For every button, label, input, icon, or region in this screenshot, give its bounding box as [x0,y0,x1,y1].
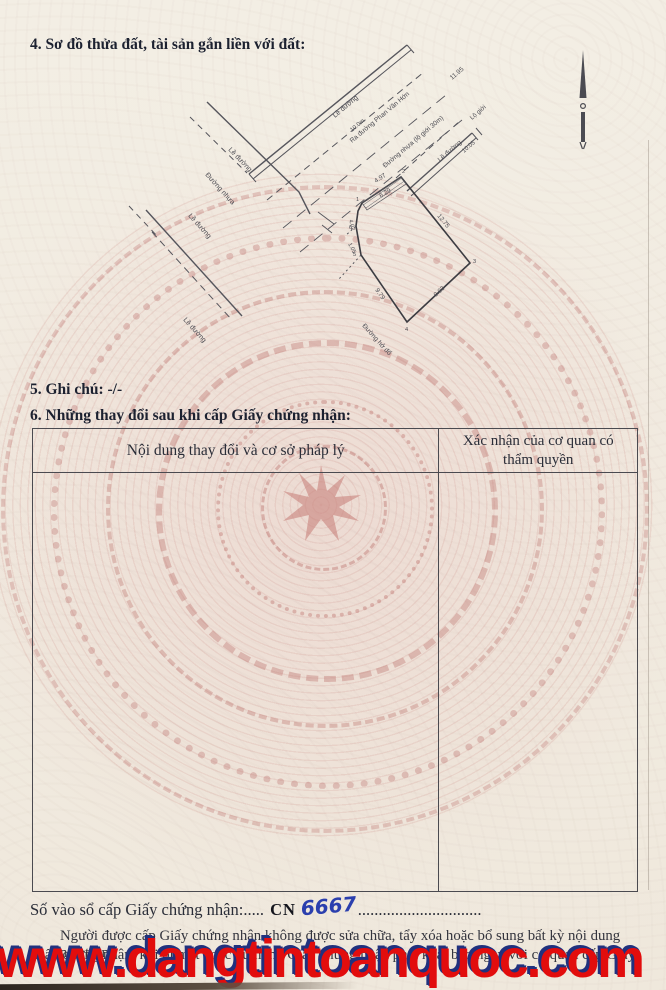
dim-right: 12.75 [435,213,451,230]
vertex-1: 1 [356,197,359,203]
road-dim-1195: 11.95 [449,66,466,82]
site-watermark: www.dangtintoanquoc.com [0,928,642,990]
registry-number-line: Số vào sổ cấp Giấy chứng nhận:..... CN 6… [30,896,481,920]
road-label-le-duong-1: Lề đường [331,93,360,120]
vertex-3: 3 [473,259,476,265]
certificate-page: 4. Sơ đồ thửa đất, tài sản gắn liền với … [0,0,666,990]
vertex-5: 5 [353,252,356,258]
vertex-4: 4 [405,327,408,333]
road-label-le-duong-2: Lề đường [435,138,463,164]
col-header-confirmation: Xác nhận của cơ quan có thẩm quyền [439,429,637,472]
road-label-le-duong-3: Lề đường [227,145,255,173]
page-edge-line [648,140,649,890]
cadastral-diagram: Lề đường 10.0m 11.95 Ra đường Phan Văn H… [0,0,666,380]
photo-edge-shadow [0,982,358,990]
dots-leader-1: ..... [243,900,264,919]
changes-table: Nội dung thay đổi và cơ sở pháp lý Xác n… [32,428,638,892]
section5-note: 5. Ghi chú: -/- [30,381,122,399]
road-dim-band: 10.05 [461,140,477,155]
content-cell-empty [33,473,439,891]
registry-number-prefix: CN [270,900,296,919]
road-label-bottom: Đường hở đổ [361,322,394,357]
road-label-duong-nhua: Đường nhựa [204,172,236,207]
road-label-le-duong-4: Lề đường [187,211,214,240]
confirmation-cell-empty [439,473,637,891]
road-label-le-duong-5: Lề đường [182,315,209,344]
street-name-nhua-lo-gioi: Đường nhựa (lộ giới 30m) [382,115,445,170]
section6-title: 6. Những thay đổi sau khi cấp Giấy chứng… [30,407,351,425]
col-header-content: Nội dung thay đổi và cơ sở pháp lý [33,429,439,472]
dots-leader-2: .............................. [358,900,482,919]
vertex-6: 6 [349,225,352,231]
table-header-row: Nội dung thay đổi và cơ sở pháp lý Xác n… [33,429,637,473]
vertex-2: 2 [402,169,405,175]
registry-number-handwritten: 6667 [300,892,358,921]
road-label-lo-gioi: Lộ giới [469,104,488,122]
registry-number-label: Số vào sổ cấp Giấy chứng nhận: [30,900,243,919]
table-body-row [33,473,637,891]
north-arrow-icon [580,50,587,149]
